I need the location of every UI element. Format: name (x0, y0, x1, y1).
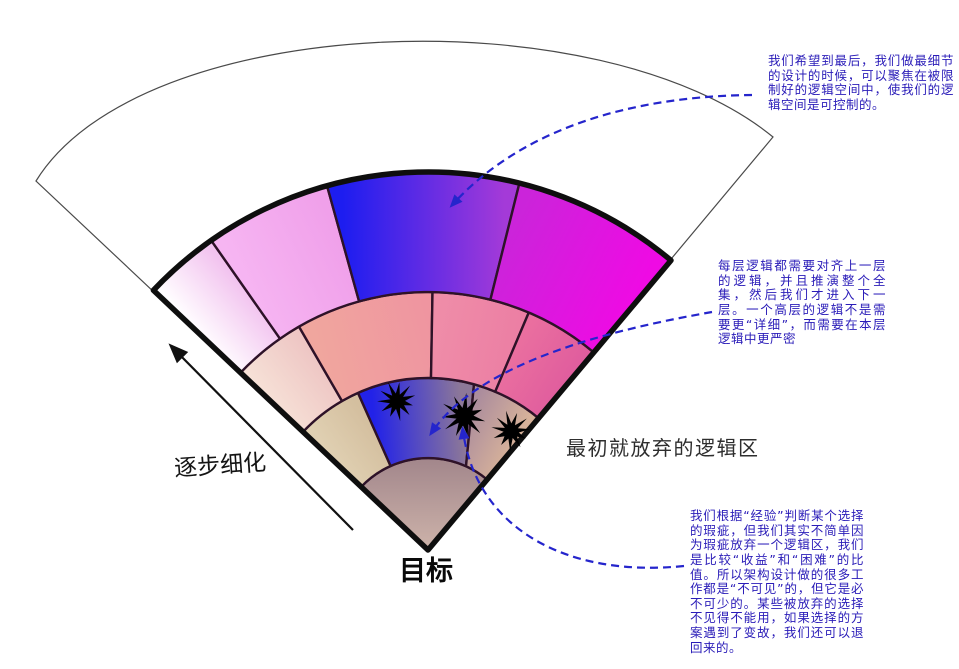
ring3-segment-blue-violet (327, 172, 519, 301)
annotation-detail-focus: 我们希望到最后，我们做最细节的设计的时候，可以聚焦在被限制好的逻辑空间中，使我们… (768, 54, 954, 113)
abandoned-region-label: 最初就放弃的逻辑区 (566, 432, 760, 461)
stepwise-refinement-label: 逐步细化 (173, 443, 267, 483)
goal-label: 目标 (399, 549, 453, 588)
architecture-fan-diagram: 我们希望到最后，我们做最细节的设计的时候，可以聚焦在被限制好的逻辑空间中，使我们… (0, 0, 959, 669)
annotation-abandon-tradeoff: 我们根据“经验”判断某个选择的瑕疵，但我们其实不简单因为瑕疵放弃一个逻辑区，我们… (690, 509, 864, 655)
annotation-layer-alignment: 每层逻辑都需要对齐上一层的逻辑，并且推演整个全集，然后我们才进入下一层。一个高层… (718, 259, 886, 347)
